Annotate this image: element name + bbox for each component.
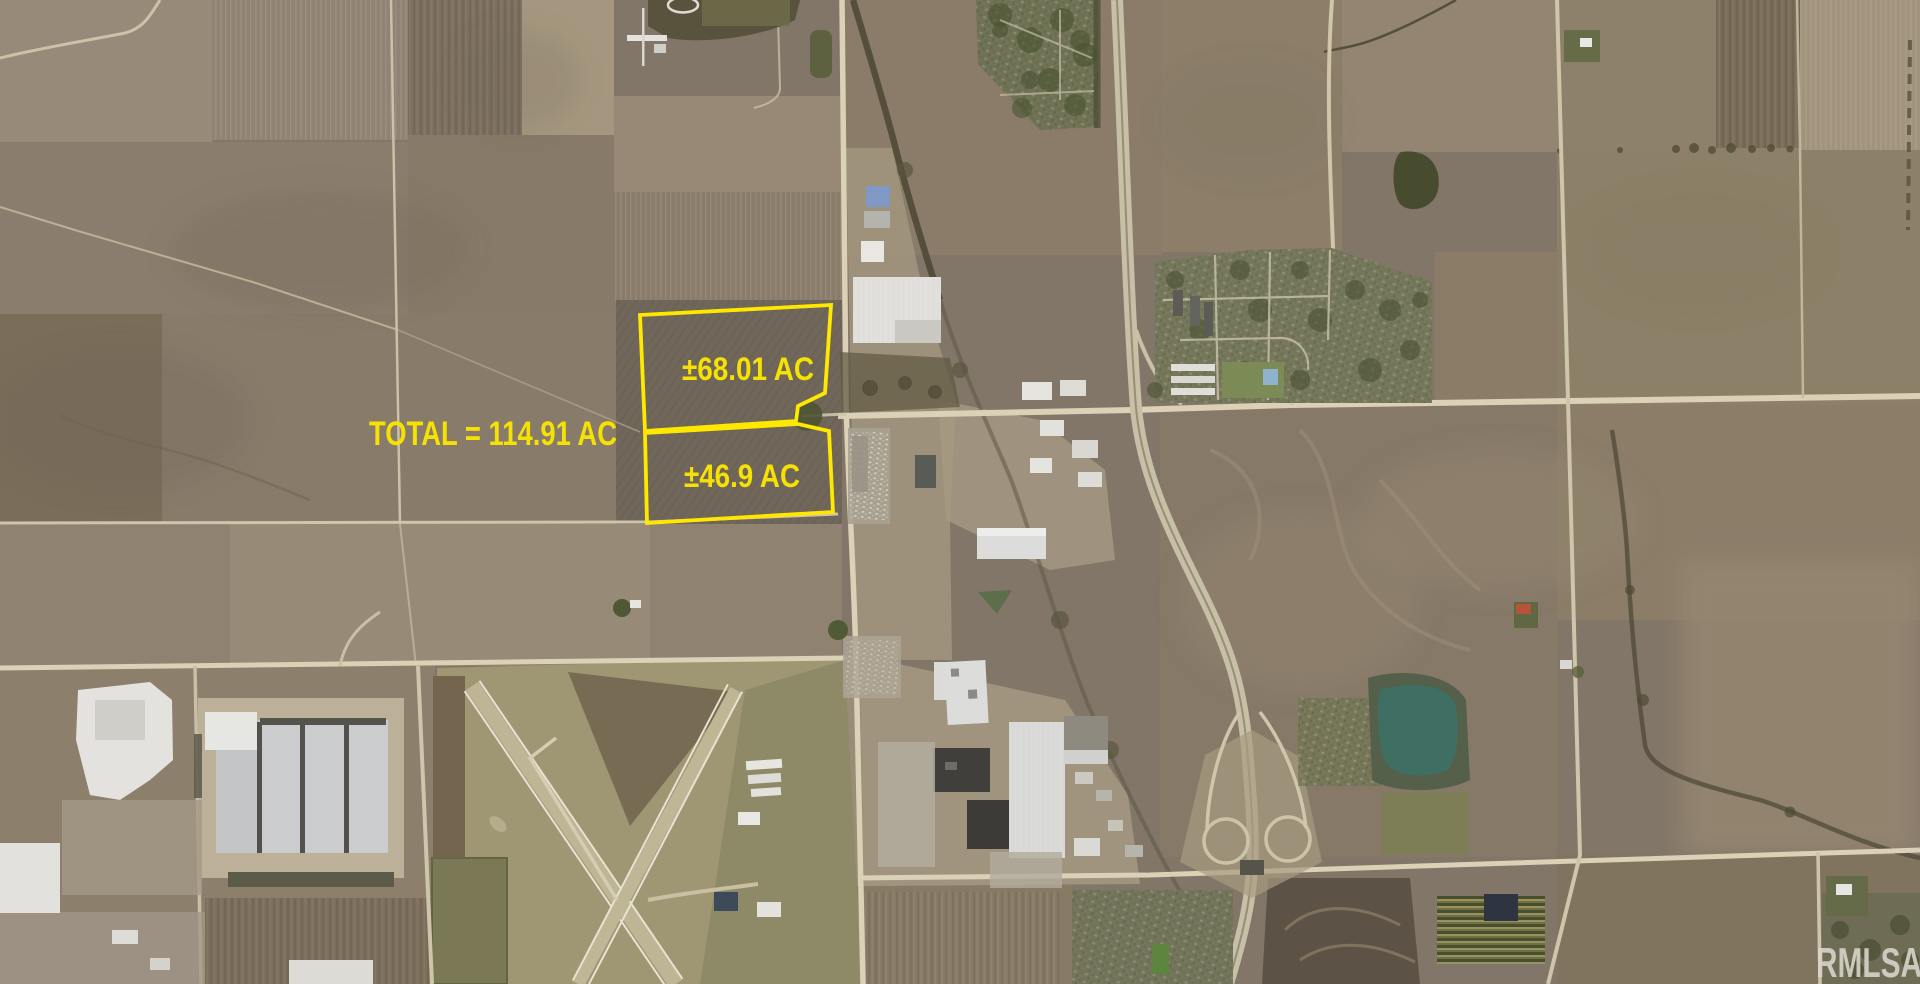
svg-text:±68.01 AC: ±68.01 AC [682,351,814,387]
svg-text:±46.9 AC: ±46.9 AC [684,458,800,494]
svg-text:RMLSA: RMLSA [1816,939,1920,984]
svg-text:TOTAL = 114.91 AC: TOTAL = 114.91 AC [369,415,617,453]
